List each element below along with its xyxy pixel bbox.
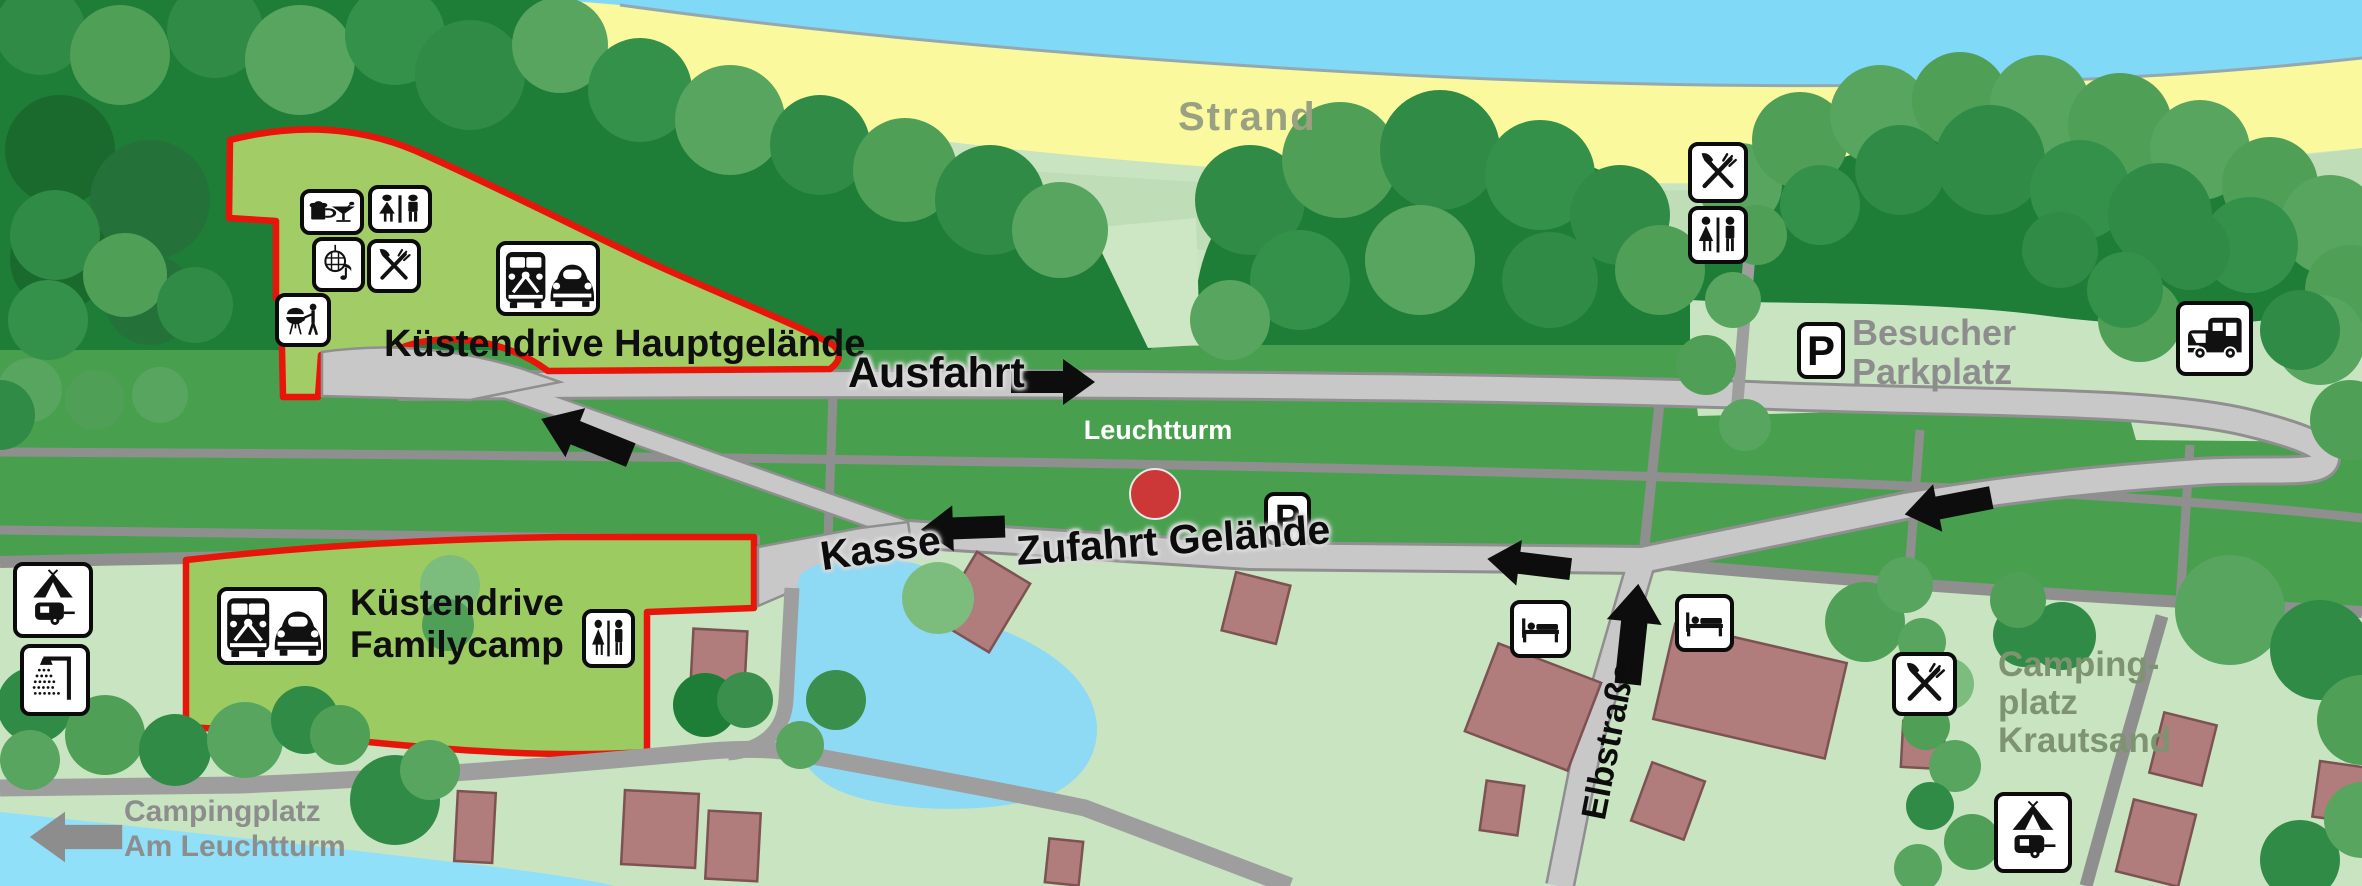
- bar-sign: [300, 189, 364, 235]
- besucher-line1: Besucher: [1852, 314, 2016, 353]
- campground-map: P P Strand Küstendrive Hauptgelände Ausf…: [0, 0, 2362, 886]
- hauptgelaende-label: Küstendrive Hauptgelände: [384, 324, 865, 365]
- restaurant-icon: [1898, 658, 1951, 710]
- restaurant-sign-hauptgelaende: [367, 239, 421, 293]
- campingplatz-am-leuchtturm-label: Campingplatz Am Leuchtturm: [124, 794, 346, 865]
- motorhome-sign: [2176, 301, 2253, 376]
- tent-caravan-sign-west: [13, 562, 93, 638]
- besucher-parkplatz-label: Besucher Parkplatz: [1852, 314, 2016, 392]
- vw-bus-and-beetle-icon: [223, 593, 321, 659]
- krautsand-line2: platz: [1998, 684, 2171, 722]
- bed-sign-east: [1675, 594, 1734, 652]
- restaurant-sign-krautsand: [1892, 652, 1957, 716]
- disco-sign: [312, 237, 365, 292]
- parking-letter: P: [1807, 330, 1835, 372]
- parking-sign-besucher: P: [1797, 322, 1845, 379]
- krautsand-line3: Krautsand: [1998, 722, 2171, 760]
- familycamp-line1: Küstendrive: [350, 582, 564, 624]
- vw-bus-and-beetle-icon: [502, 247, 594, 310]
- bar-icon: [306, 195, 358, 229]
- tent-caravan-icon: [19, 568, 87, 632]
- am-leuchtturm-line1: Campingplatz: [124, 794, 346, 829]
- shower-sign: [20, 644, 90, 716]
- leuchtturm-label: Leuchtturm: [1078, 416, 1238, 445]
- am-leuchtturm-line2: Am Leuchtturm: [124, 829, 346, 864]
- restaurant-icon: [1694, 148, 1742, 197]
- wc-icon: [588, 615, 629, 662]
- bed-sign-west: [1510, 600, 1571, 658]
- ausfahrt-label: Ausfahrt: [848, 350, 1025, 396]
- bbq-icon: [281, 299, 325, 341]
- familycamp-line2: Familycamp: [350, 624, 564, 666]
- vw-bus-sign-familycamp: [217, 587, 327, 665]
- disco-icon: [318, 243, 359, 286]
- tent-caravan-sign-krautsand: [1994, 792, 2072, 873]
- bed-icon: [1681, 600, 1728, 646]
- wc-sign-hauptgelaende: [368, 185, 432, 233]
- tent-caravan-icon: [2000, 798, 2066, 867]
- campingplatz-krautsand-label: Camping- platz Krautsand: [1998, 646, 2171, 759]
- strand-label: Strand: [1178, 96, 1317, 139]
- wc-sign-familycamp: [582, 609, 635, 668]
- motorhome-icon: [2182, 307, 2247, 370]
- wc-icon: [1694, 212, 1742, 258]
- vw-bus-sign-hauptgelaende: [496, 241, 600, 316]
- restaurant-icon: [373, 245, 415, 287]
- besucher-line2: Parkplatz: [1852, 353, 2016, 392]
- krautsand-line1: Camping-: [1998, 646, 2171, 684]
- bed-icon: [1516, 606, 1565, 652]
- wc-sign-beach: [1688, 206, 1748, 264]
- shower-icon: [26, 650, 84, 710]
- wc-icon: [374, 191, 426, 227]
- familycamp-label: Küstendrive Familycamp: [350, 582, 564, 666]
- lighthouse-marker-dot: [1130, 469, 1180, 519]
- bbq-sign: [275, 293, 331, 347]
- restaurant-sign-beach: [1688, 142, 1748, 203]
